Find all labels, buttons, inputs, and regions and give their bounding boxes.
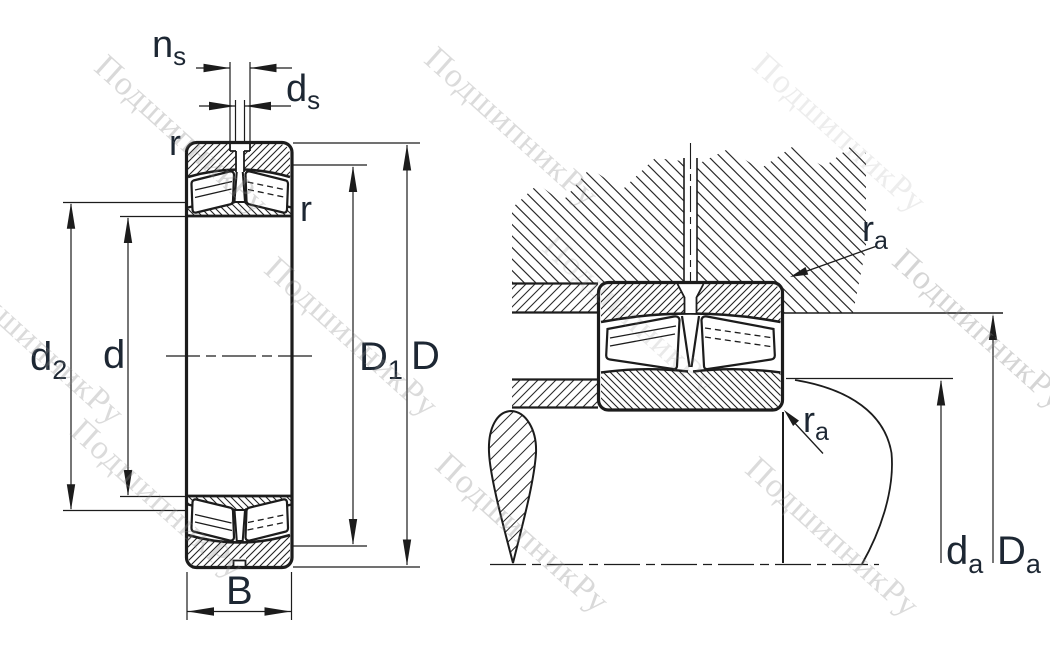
bearing-drawing-svg: ns ds r r d2 d D1 D B ra ra da Da xyxy=(0,0,1050,650)
mounting-arrangement-view xyxy=(489,143,1003,565)
shaft-shoulder-section xyxy=(489,411,536,563)
cover-ring-left xyxy=(512,285,598,313)
dimension-labels: ns ds r r d2 d D1 D B ra ra da Da xyxy=(30,24,1042,613)
mounted-rollers xyxy=(606,316,775,369)
label-D: D xyxy=(411,334,440,378)
guide-flange xyxy=(682,316,699,367)
label-D1: D1 xyxy=(359,335,403,385)
mounted-bearing xyxy=(599,283,783,411)
dimension-ns-ds xyxy=(196,62,292,143)
label-ra-bottom: ra xyxy=(803,399,829,446)
label-ds: ds xyxy=(286,68,320,115)
label-r-top-left: r xyxy=(169,122,181,163)
label-da: da xyxy=(946,529,984,579)
label-ns: ns xyxy=(152,24,186,71)
label-ra-top: ra xyxy=(862,208,888,255)
label-B: B xyxy=(226,569,253,613)
shaft-abutment-ring-left xyxy=(512,380,598,408)
label-r-right: r xyxy=(300,188,312,229)
label-d: d xyxy=(103,333,125,377)
technical-drawing-canvas: ns ds r r d2 d D1 D B ra ra da Da Подшип… xyxy=(0,0,1050,650)
label-Da: Da xyxy=(997,529,1042,579)
label-d2: d2 xyxy=(30,335,67,385)
